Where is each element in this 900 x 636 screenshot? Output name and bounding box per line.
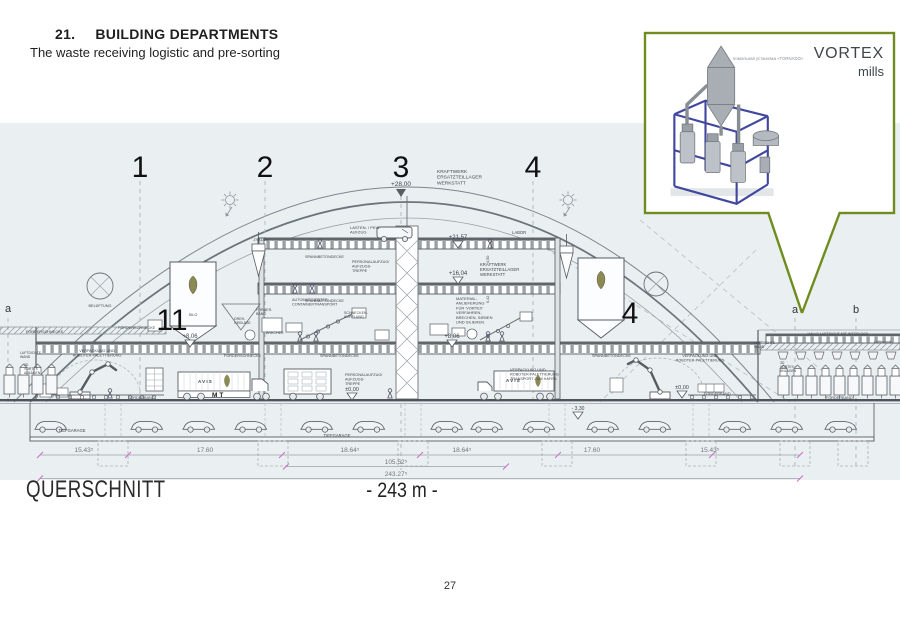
drawing-label: 243.27⁵ [385, 471, 408, 478]
drawing-label: 5,42 [486, 296, 490, 303]
span-length-label: - 243 m - [334, 479, 470, 503]
section-number: 21. [55, 26, 75, 42]
drawing-label: a [792, 304, 799, 316]
page-header: 21.BUILDING DEPARTMENTS The waste receiv… [30, 26, 280, 60]
inset-brand-block: VORTEX mills [814, 45, 884, 79]
drawing-label: Lufttechnik [874, 340, 892, 344]
drawing-label: FÖRDERSCHNECKE [26, 330, 64, 334]
drawing-label: 2 [257, 151, 274, 184]
page-number: 27 [0, 580, 900, 592]
section-title: BUILDING DEPARTMENTS [95, 26, 278, 42]
drawing-label: 17.60 [197, 447, 214, 454]
drawing-label: FÖRDERBAND [704, 392, 731, 396]
drawing-label: 4 [622, 297, 639, 330]
drawing-label: VERPACKUNG UNDROBOTER-PALETTIERUNG [73, 349, 122, 357]
drawing-label: 105.52⁵ [385, 459, 408, 466]
inset-brand-sub: mills [814, 64, 884, 79]
inset-brand: VORTEX [814, 45, 884, 63]
vortex-mills-inset: помольная установка «TORNADO» VORTEX mil… [645, 33, 894, 213]
container-stack [146, 368, 163, 391]
drawing-label: HALLE LUFTDICHT MIT INTERLOCK [808, 332, 870, 336]
drawing-label: +8,06 [182, 334, 198, 340]
drawing-label: b [853, 304, 859, 316]
drawing-label: BRECHER [266, 331, 284, 335]
drawing-label: 4,50 [486, 256, 490, 263]
drawing-label: +28,00 [391, 181, 411, 188]
drawing-label: FÖRDERSCHNECKE [224, 354, 262, 358]
drawing-label: +16,04 [449, 271, 468, 277]
drawing-label: 1 [132, 151, 149, 184]
drawing-label: MT [212, 392, 225, 399]
drawing-label: ±0,00 [675, 385, 689, 391]
drawing-label: AVIS [198, 379, 213, 384]
drawing-label: 18.64⁵ [341, 447, 360, 454]
drawing-label: TIEFGARAGE [59, 428, 86, 433]
drawing-label: FÖRDERBAND [826, 396, 853, 400]
drawing-label: - 3,30 [572, 406, 585, 412]
elevator-shaft [396, 196, 418, 399]
drawing-label: FÖRDERSCHNECKE [118, 326, 156, 330]
section-heading: 21.BUILDING DEPARTMENTS [30, 26, 280, 42]
drawing-label: SPANNBETONDECKE [320, 354, 359, 358]
vortex-mill-3d-render [651, 41, 797, 207]
drawing-label: LABOR [512, 230, 526, 235]
drawing-label: SILO [189, 313, 198, 317]
drawing-label: 15.43⁵ [701, 447, 720, 454]
drawing-label: AVIS [506, 378, 521, 383]
drawing-title: QUERSCHNITT [26, 476, 165, 504]
inset-caption: помольная установка «TORNADO» [733, 56, 805, 61]
drawing-label: +8,06 [444, 334, 460, 340]
drawing-label: 4 [525, 151, 542, 184]
drawing-label: SPANNBETONDECKE [305, 255, 344, 259]
drawing-label: ±0,00 [345, 387, 359, 393]
drawing-label: VERPACKUNG UNDROBOTER-PALETTIERUNG [676, 354, 725, 362]
drawing-label: 18.64⁵ [453, 447, 472, 454]
drawing-label: SPANNBETONDECKE [592, 354, 631, 358]
drawing-label: 15.43⁵ [75, 447, 94, 454]
section-subtitle: The waste receiving logistic and pre-sor… [30, 45, 280, 60]
drawing-label: ZYKLON [253, 238, 268, 242]
drawing-label: BELÜFTUNG [89, 304, 112, 308]
drawing-label: 3 [393, 151, 410, 184]
drawing-label: FÖRDERBAND [128, 396, 155, 400]
drawing-label: a [5, 303, 12, 315]
drawing-label: +21,57 [449, 235, 468, 241]
drawing-label: 17.60 [584, 447, 601, 454]
drawing-label: TIEFGARAGE [324, 433, 351, 438]
drawing-label: 11 [156, 304, 187, 337]
